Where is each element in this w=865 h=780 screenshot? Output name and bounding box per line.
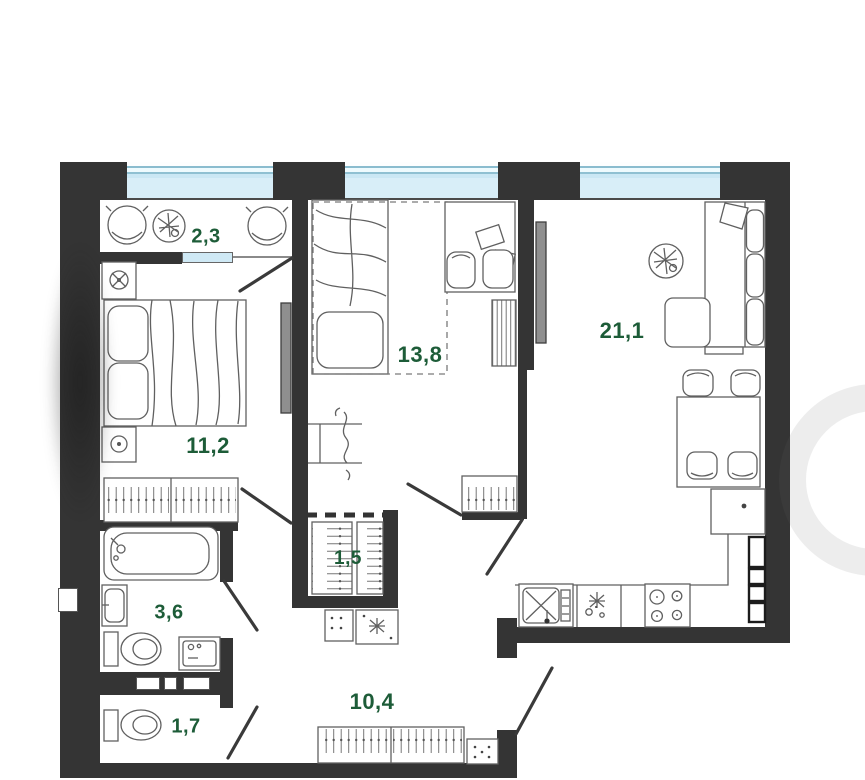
floor-plan: 2,3 11,2 13,8 21,1 1,5 3,6 10,4 1,7	[0, 0, 865, 780]
loggia-window-sill	[182, 252, 233, 263]
shoe-bench-icon	[325, 610, 398, 644]
fridge-icon	[711, 489, 765, 534]
room-area-label-loggia: 2,3	[191, 226, 220, 249]
watermark-blob	[28, 192, 112, 572]
stove-icon	[645, 584, 690, 627]
wardrobe-icon	[318, 727, 464, 763]
shaft-niche	[136, 677, 160, 690]
plant-icon	[649, 244, 683, 278]
flower-decor-icon	[586, 592, 605, 617]
wall-niche	[58, 588, 78, 612]
wall-segment	[273, 162, 345, 200]
kitchen-counter-edge	[515, 490, 728, 585]
washing-machine-icon	[179, 637, 220, 670]
wardrobe-icon	[462, 476, 517, 512]
drying-rack-icon	[308, 408, 362, 480]
tv-icon	[281, 303, 291, 413]
double-bed-icon	[104, 300, 246, 426]
kitchen-cabinet-column-icon	[749, 537, 765, 622]
counter-divider-lines	[577, 585, 621, 627]
chair-icon	[447, 252, 475, 288]
desk-icon	[445, 202, 515, 292]
room-area-label-hallway: 10,4	[350, 689, 395, 715]
shaft-niche	[183, 677, 210, 690]
dining-chair-icon	[683, 370, 760, 396]
kitchen-sink-icon	[519, 584, 573, 627]
wall-segment	[518, 200, 534, 370]
furniture-layer	[0, 0, 865, 780]
shaft-niche	[164, 677, 177, 690]
window	[345, 162, 498, 200]
wall-segment	[292, 200, 308, 608]
plant-icon	[153, 210, 185, 242]
wall-segment	[462, 512, 524, 520]
wall-segment	[220, 520, 233, 582]
room-area-label-closet: 1,5	[334, 548, 362, 570]
room-area-label-living-kitchen: 21,1	[600, 318, 645, 344]
toilet-icon	[104, 632, 161, 666]
wardrobe-icon	[104, 478, 238, 522]
toilet-icon	[104, 710, 161, 741]
room-area-label-bedroom2: 13,8	[398, 342, 443, 368]
window	[127, 162, 273, 200]
wall-segment	[765, 162, 790, 643]
dining-table-icon	[677, 397, 760, 487]
shelf-icon	[492, 300, 516, 366]
round-chair-icon	[106, 206, 148, 244]
round-chair-icon	[246, 207, 288, 245]
room-area-label-wc: 1,7	[171, 716, 200, 739]
wall-segment	[497, 730, 517, 778]
wall-segment	[518, 370, 527, 519]
watermark-ring	[779, 384, 865, 576]
wall-segment	[512, 627, 790, 643]
wall-segment	[497, 618, 517, 658]
single-bed-icon	[312, 200, 388, 374]
bathroom-sink-icon	[102, 585, 127, 626]
wall-segment	[383, 510, 398, 608]
wall-segment	[100, 520, 238, 531]
bathtub-icon	[104, 527, 218, 580]
tv-icon	[536, 222, 546, 343]
dining-chair-icon	[687, 452, 757, 479]
wall-segment	[498, 162, 580, 200]
sofa-icon	[665, 202, 765, 354]
room-area-label-bathroom: 3,6	[154, 602, 183, 625]
chair-icon	[483, 250, 513, 288]
wall-segment	[100, 252, 182, 264]
window	[580, 162, 720, 200]
room-area-label-bedroom: 11,2	[186, 433, 230, 459]
wall-segment	[60, 763, 500, 778]
pouf-icon	[467, 739, 498, 764]
opening-line	[233, 256, 292, 258]
door-swing-icon	[224, 258, 552, 758]
